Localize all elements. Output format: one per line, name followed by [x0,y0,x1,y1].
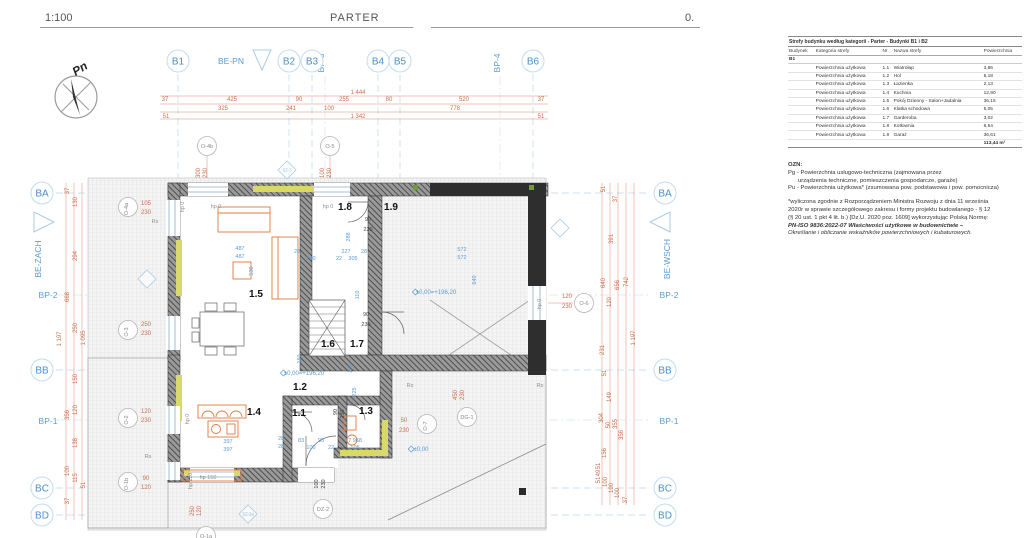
room-number-label: 1.8 [338,202,352,213]
section-label: BE-PN [218,56,244,66]
opening-label: O-6 [579,301,588,307]
dimension-label: 28 [278,444,284,450]
dimension-label: 450 [453,389,459,400]
room-number-label: 1.1 [292,408,306,419]
diamond-label: SZ-2a [242,512,254,517]
annotation-label: hp 0 [180,202,186,213]
dimension-label: 120 [562,294,573,300]
area-table-row: Powierzchnia użytkowa 1.7 Garderoba 3,02 [788,114,1022,122]
room-number-label: 1.4 [247,407,261,418]
area-table-title: Strefy budynku według kategorii - Parter… [788,37,1022,47]
room-number-label: 1.5 [249,289,263,300]
area-category: Powierzchnia użytkowa [815,123,882,131]
dimension-label: 138 [73,437,79,448]
note-line: Określanie i obliczanie wskaźników powie… [788,230,1022,238]
dimension-label: 90 [365,217,371,223]
dimension-label: 210 [348,363,354,372]
dimension-label: 227 [341,249,350,255]
area-number: 1.3 [881,81,892,89]
area-number: 1.5 [881,97,892,105]
note-line: OZN: [788,162,1022,170]
dimension-label: 304 [599,412,605,423]
dimension-label: 305 [348,256,357,262]
dimension-label: 640 [601,277,607,288]
dimension-label: 1 197 [631,330,637,346]
annotation-label: hp 0 [185,414,191,425]
dimension-label: 230 [340,409,346,418]
grid-bubble-label: B2 [283,57,296,68]
dimension-label: 105 [350,445,359,451]
area-number: 1.7 [881,114,892,122]
dimension-label: 90 [143,476,150,482]
dimension-label: 230 [321,479,327,488]
grid-bubble-label: BC [658,484,672,495]
dimension-label: 110 [355,291,361,300]
dimension-label: 51 [601,185,607,192]
area-table-header: Budynek Kategoria strefy Nr Nazwa strefy… [788,47,1022,56]
area-value: 3,86 [983,64,1022,72]
dimension-label: 230 [361,322,370,328]
area-name: Pokój Dzienny - Salon+Jadalnia [893,97,983,105]
dimension-label: 300 [196,167,202,178]
area-value: 3,02 [983,114,1022,122]
dimension-label: 230 [562,304,573,310]
dimension-label: 250 [190,505,196,516]
dimension-label: 230 [141,331,152,337]
dimension-label: 100 [306,256,315,262]
opening-label: O-4b [201,144,213,150]
dimension-label: 356 [65,409,71,420]
north-compass: Pn [55,59,97,118]
dimension-label: 37 [613,195,619,202]
opening-label: O-1b [124,478,130,490]
dimension-label: 150 [73,373,79,384]
room-number-label: 1.6 [321,339,335,350]
dimension-label: 425 [227,97,238,103]
annotation-label: Rs [152,219,159,225]
area-number: 1.1 [881,64,892,72]
area-total-row: 113,44 m² [788,139,1022,147]
dimension-label: 22 [328,445,334,451]
grid-bubble-label: B5 [394,57,407,68]
dimension-label: 49 [596,469,602,476]
dimension-label: 51 [596,476,602,483]
dimension-label: 105 [141,201,152,207]
area-table-row: Powierzchnia użytkowa 1.2 Hol 5,18 [788,72,1022,80]
area-table-row: Powierzchnia użytkowa 1.5 Pokój Dzienny … [788,97,1022,105]
dimension-label: 90 [296,97,303,103]
dimension-label: 778 [450,106,461,112]
dimension-label: 230 [141,418,152,424]
dimension-label: 241 [286,106,297,112]
area-name: Kotłownia [893,123,983,131]
note-line: *wyliczona zgodnie z Rozporządzeniem Min… [788,199,1022,207]
title-underline [431,27,700,28]
note-line: (§ 20 ust. 1 pkt 4 lit. b.) [Dz.U. 2020 … [788,215,1022,223]
area-table-row: Powierzchnia użytkowa 1.6 Klatka schodow… [788,106,1022,114]
area-table-body: Powierzchnia użytkowa 1.1 Wiatrołap 3,86… [788,64,1022,139]
room-number-label: 1.3 [359,406,373,417]
section-label: BP-1 [660,416,679,426]
grid-bubble-label: BA [658,189,672,200]
dimension-label: 22 [336,256,342,262]
area-value: 8,54 [983,123,1022,131]
opening-label: DZ-2 [317,507,329,513]
dimension-label: 294 [73,250,79,261]
area-value: 5,18 [983,72,1022,80]
dimension-label: 391 [609,233,615,244]
dimension-label: 1 444 [350,90,366,96]
level-label: ±0,00=+196,20 [284,371,325,377]
dimension-label: 487 [235,254,244,260]
area-number: 1.2 [881,72,892,80]
area-name: Garaż [893,131,983,139]
dimension-label: 325 [218,106,229,112]
dimension-label: 51 [163,114,170,120]
dimension-label: 37 [65,187,71,194]
note-line: Pu - Powierzchnia użytkowa* (zsumowana p… [788,185,1022,193]
west-terrace [88,358,168,528]
diamond-label: SZ-3 [282,168,292,173]
grid-bubble-label: B1 [172,57,185,68]
annotation-label: Rs [145,454,152,460]
dimension-label: 397 [223,447,232,453]
floor-plan-sheet: 1:100 PARTER 0. Pn [0,0,1024,538]
section-label: BP-4 [492,53,502,72]
dimension-label: 90 [363,312,369,318]
grid-bubble-label: BB [658,366,672,377]
annotation-label: hp 0 [323,204,334,210]
dimension-label: 230 [203,167,209,178]
opening-label: O-4a [124,202,130,215]
area-number: 1.4 [881,89,892,97]
dimension-label: 668 [65,291,71,302]
area-number: 1.6 [881,106,892,114]
area-category: Powierzchnia użytkowa [815,114,882,122]
dimension-label: 37 [623,496,629,503]
section-label: BP-1 [39,416,58,426]
note-line: PN-ISO 9836:2022-07 Właściwości użytkowe… [788,223,1022,231]
dimension-label: 100 [615,487,621,498]
dimension-label: 572 [457,255,466,261]
dimension-label: 90 [333,409,339,415]
dimension-label: 50 [401,418,408,424]
dimension-label: 230 [141,210,152,216]
page-number: 0. [685,12,694,24]
area-value: 36,61 [983,131,1022,139]
level-label: ±0,00=+196,20 [416,290,457,296]
dimension-label: 231 [600,344,606,355]
dimension-label: 37 [162,97,169,103]
dimension-label: 120 [607,296,613,307]
room-number-label: 1.2 [293,382,307,393]
dimension-label: 28 [294,249,300,255]
room-number-label: 1.9 [384,202,398,213]
building-group-row: B1 [788,56,1022,64]
dimension-label: 51 [602,369,608,376]
area-category: Powierzchnia użytkowa [815,81,882,89]
dimension-label: 149 [607,391,613,402]
drain-square [519,488,526,495]
grid-bubble-label: BD [658,511,672,522]
area-value: 36,15 [983,97,1022,105]
dimension-label: 37 [65,497,71,504]
dimension-label: 120 [141,485,152,491]
dimension-label: 640 [472,275,478,284]
area-table-row: Powierzchnia użytkowa 1.3 Łazienka 2,13 [788,81,1022,89]
dimension-label: 520 [459,97,470,103]
opening-label: DG-1 [460,415,473,421]
area-table: Strefy budynku według kategorii - Parter… [788,36,1022,148]
dimension-label: 28 [361,249,367,255]
annotation-label: hp 110 [188,473,194,489]
annotation-label: hp 0 [537,299,543,310]
dimension-label: 742 [624,276,630,287]
area-table-row: Powierzchnia użytkowa 1.9 Garaż 36,61 [788,131,1022,139]
dimension-label: 230 [327,167,333,178]
section-label: BP-2 [660,290,679,300]
dimension-label: 80 [386,97,393,103]
dimension-label: 250 [141,322,152,328]
dimension-label: 487 [235,246,244,252]
section-label: BE-WSCH [662,239,672,279]
compass-needle [71,79,80,115]
opening-label: O-3 [124,327,130,336]
area-category: Powierzchnia użytkowa [815,106,882,114]
drawing-scale: 1:100 [45,12,73,24]
area-name: Klatka schodowa [893,106,983,114]
dimension-label: 37 [538,97,545,103]
dimension-label: 120 [73,404,79,415]
dimension-label: 1 342 [350,114,366,120]
grid-bubble-label: BA [35,189,49,200]
grid-bubble-label: BC [35,484,49,495]
page-title: PARTER [330,12,380,24]
area-total: 113,44 m² [983,139,1022,147]
annotation-label: Rs [407,383,414,389]
area-table-row: Powierzchnia użytkowa 1.8 Kotłownia 8,54 [788,123,1022,131]
dimension-label: 255 [339,97,350,103]
area-category: Powierzchnia użytkowa [815,89,882,97]
area-value: 12,90 [983,89,1022,97]
opening-label: O-7 [423,421,429,430]
dimension-label: 572 [457,247,466,253]
grid-bubble-label: BB [35,366,49,377]
dimension-label: 28 [278,436,284,442]
dimension-label: 83 [298,438,304,444]
note-line: Pg - Powierzchnia usługowo-techniczna (z… [788,170,1022,178]
annotation-label: hp 0 [211,204,222,210]
grid-bubble-label: B3 [306,57,319,68]
dimension-label: 156 [602,447,608,458]
dimension-label: 100 [65,465,71,476]
dimension-label: 90 [318,438,324,444]
area-name: Wiatrołap [893,64,983,72]
area-name: Kuchnia [893,89,983,97]
dimension-label: 51 [538,114,545,120]
dimension-label: 355 [613,418,619,429]
annotation-label: Rs [537,383,544,389]
dimension-label: 288 [346,232,352,241]
room-number-label: 1.7 [350,339,364,350]
area-name: Łazienka [893,81,983,89]
dimension-label: 100 [324,106,335,112]
dimension-label: 51 [596,462,602,469]
area-panel: Strefy budynku według kategorii - Parter… [788,36,1022,238]
dimension-label: 100 [320,167,326,178]
area-value: 2,13 [983,81,1022,89]
section-label: BP-2 [39,290,58,300]
area-category: Powierzchnia użytkowa [815,131,882,139]
dimension-label: 1 095 [81,330,87,346]
grid-bubble-label: BD [35,511,49,522]
dimension-label: 230 [363,227,372,233]
dimension-label: 115 [73,473,79,483]
dimension-label: 225 [352,387,358,396]
title-bar: 1:100 PARTER 0. [0,10,1024,30]
dimension-label: 656 [615,279,621,290]
section-label: BE-ZACH [33,240,43,277]
opening-label: O-1a [200,534,213,538]
dimension-label: 230 [460,389,466,400]
dimension-label: 397 [223,439,232,445]
dimension-label: 100 [314,479,320,488]
area-table-row: Powierzchnia użytkowa 1.4 Kuchnia 12,90 [788,89,1022,97]
area-name: Hol [893,72,983,80]
dimension-label: 120 [197,505,203,516]
opening-label: O-5 [325,144,334,150]
dimension-label: 250 [73,322,79,333]
dimension-label: 230 [399,428,410,434]
area-value: 5,05 [983,106,1022,114]
area-name: Garderoba [893,114,983,122]
area-category: Powierzchnia użytkowa [815,72,882,80]
area-number: 1.9 [881,131,892,139]
grid-bubble-label: B4 [372,57,385,68]
area-category: Powierzchnia użytkowa [815,64,882,72]
dimension-label: 530 [249,266,255,275]
diamond-marker [551,219,569,237]
title-underline [40,27,413,28]
level-label: ±0,00 [414,447,430,453]
dimension-label: 120 [141,409,152,415]
legend-notes: OZN:Pg - Powierzchnia usługowo-techniczn… [788,162,1022,238]
compass-label: Pn [70,59,90,79]
dimension-label: 100 [306,445,315,451]
annotation-label: hp 150 [200,475,217,481]
area-number: 1.8 [881,123,892,131]
dimension-label: 7 968 [348,438,362,444]
dimension-label: 150 [297,354,303,363]
area-table-row: Powierzchnia użytkowa 1.1 Wiatrołap 3,86 [788,64,1022,72]
note-line: urządzenia techniczne, pomieszczenia gos… [788,178,1022,186]
dimension-label: 51 [81,481,87,488]
dimension-label: 130 [73,196,79,207]
dimension-label: 1 197 [57,331,63,347]
area-category: Powierzchnia użytkowa [815,97,882,105]
note-line: 2020r w sprawie szczegółowego zakresu i … [788,207,1022,215]
opening-label: O-2 [124,415,130,424]
grid-bubble-label: B6 [527,57,540,68]
dimension-label: 356 [619,429,625,440]
dimension-label: 50 [606,421,612,428]
